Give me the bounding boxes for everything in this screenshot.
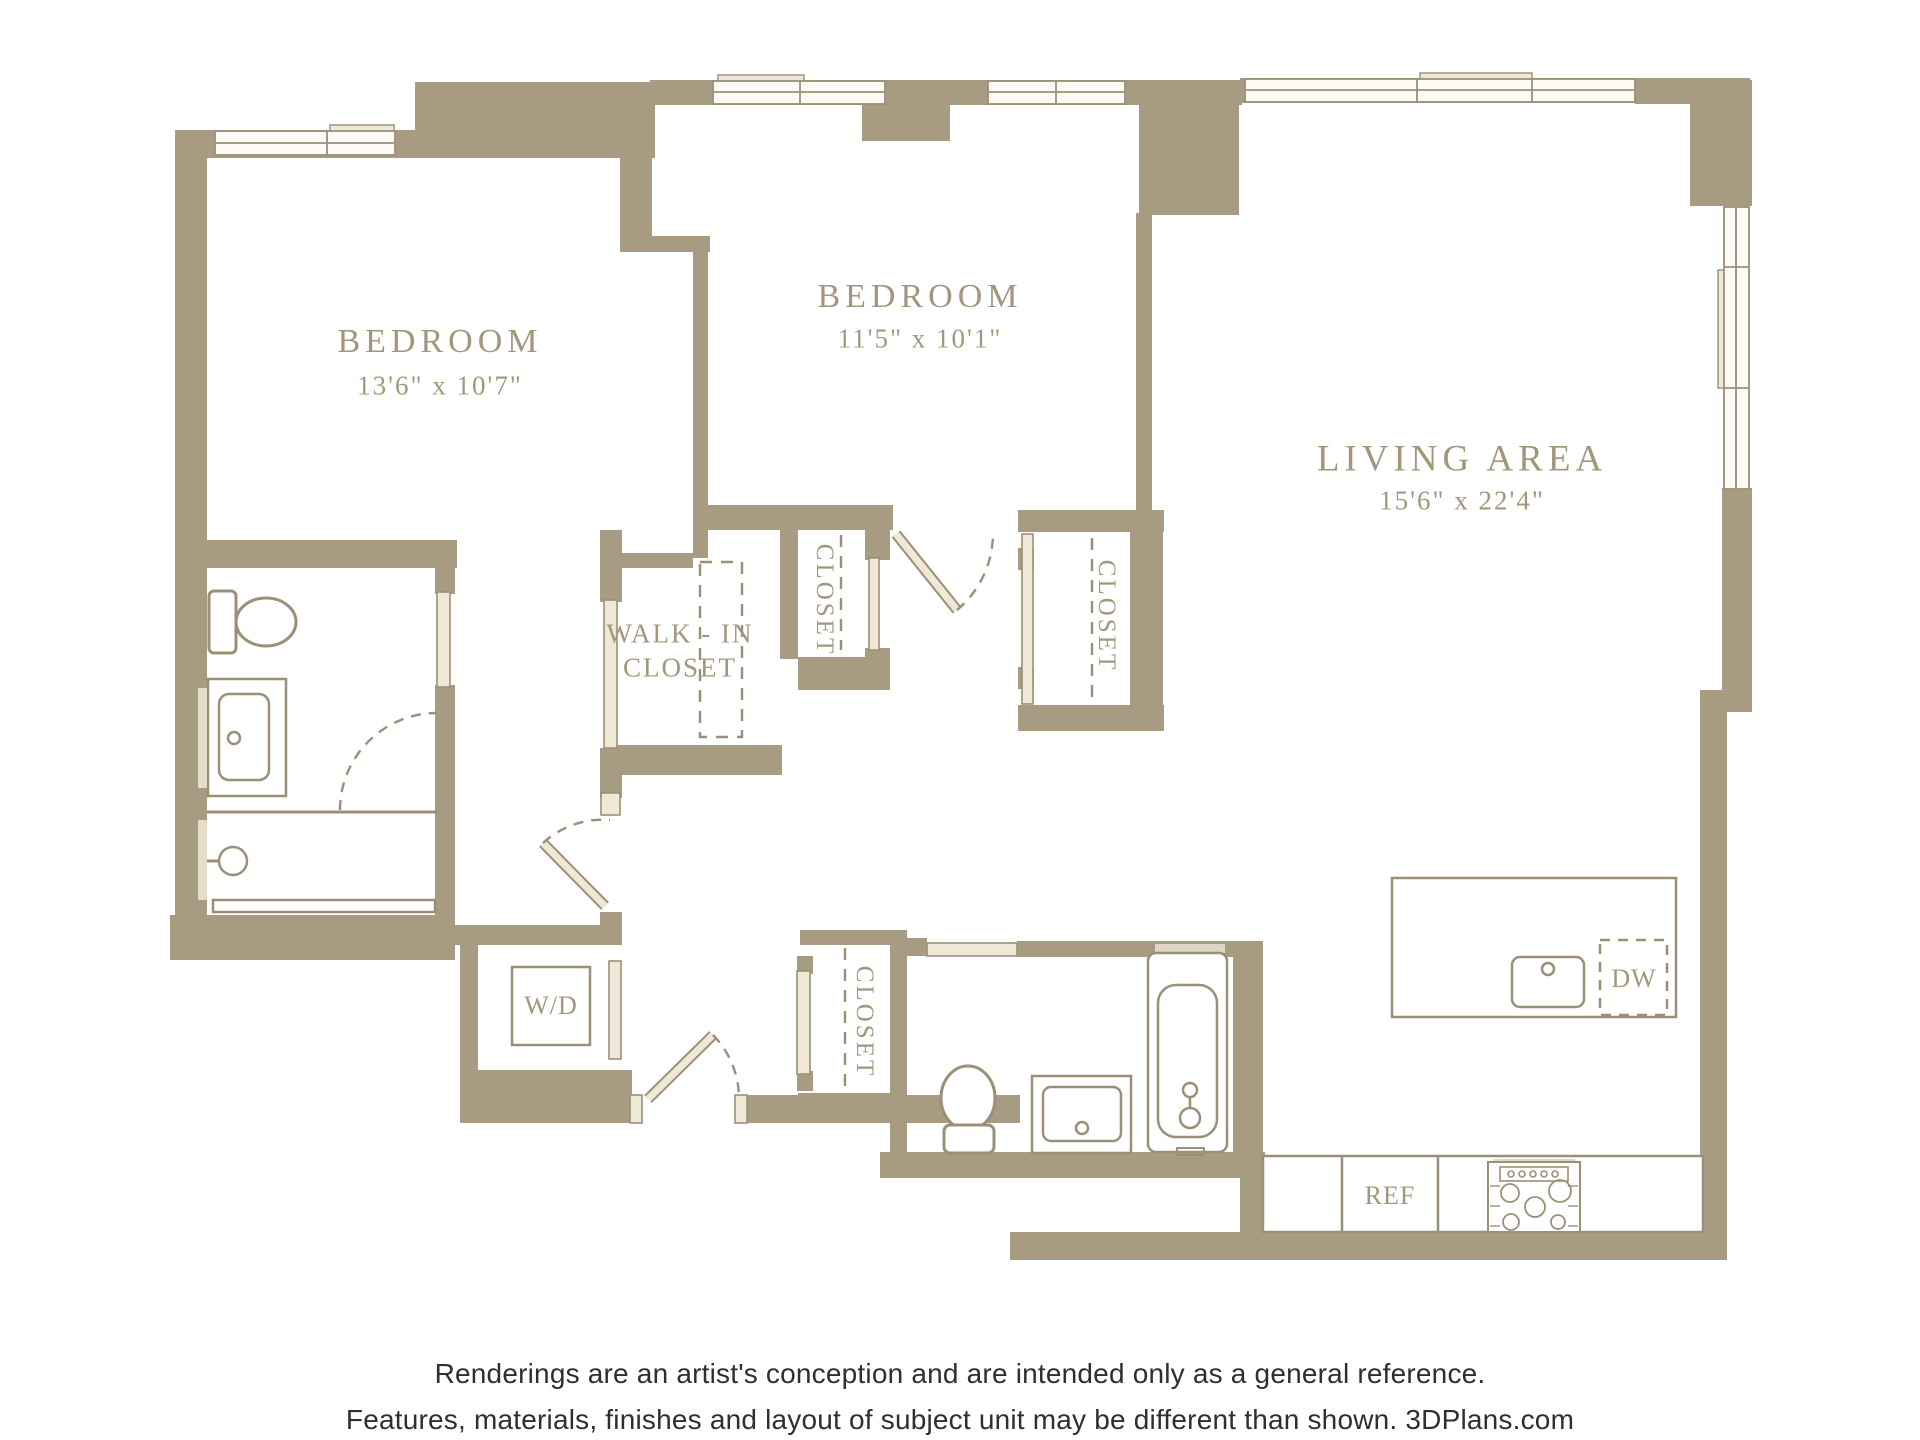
kitchen-counter (1263, 1156, 1703, 1232)
wd-door (609, 961, 621, 1059)
bath1-door (437, 592, 450, 687)
disclaimer-line1: Renderings are an artist's conception an… (435, 1358, 1486, 1390)
walk-in-closet-label-line2: CLOSET (623, 653, 737, 684)
disclaimer-line2: Features, materials, finishes and layout… (346, 1404, 1574, 1436)
floor-plan-svg (0, 0, 1920, 1440)
entry-jamb-right (735, 1095, 747, 1123)
walkin-shelf (700, 562, 742, 737)
walk-in-closet-label-line1: WALK - IN (607, 619, 754, 650)
stove (1488, 1159, 1580, 1232)
washer-dryer-label: W/D (524, 991, 578, 1021)
closet3-door (797, 971, 810, 1074)
living-area-dimensions: 15'6" x 22'4" (1379, 486, 1545, 517)
floor-plan-page: BEDROOM 13'6" x 10'7" BEDROOM 11'5" x 10… (0, 0, 1920, 1440)
bedroom2-door-arc (957, 533, 993, 610)
kitchen-fixtures (1263, 878, 1703, 1232)
bath1-door-arc (340, 713, 437, 810)
closet2-label: CLOSET (1092, 560, 1120, 672)
bathtub (1148, 944, 1227, 1155)
toilet1 (209, 591, 296, 653)
closet3-label: CLOSET (850, 966, 878, 1078)
tub1-edge (213, 900, 435, 912)
entry-jamb-left (630, 1095, 642, 1123)
closet1-door (869, 558, 879, 650)
bedroom1-label: BEDROOM (337, 323, 542, 361)
vanity-sink2 (1032, 1076, 1131, 1153)
vanity-sink1 (208, 679, 286, 796)
bedroom2-label: BEDROOM (817, 278, 1022, 316)
bathroom2-fixtures (941, 944, 1227, 1155)
toilet2 (941, 1066, 995, 1153)
dishwasher-label: DW (1611, 964, 1656, 994)
hall-door-arc (543, 820, 610, 843)
kitchen-island (1392, 878, 1676, 1017)
entry-door-arc (713, 1035, 739, 1097)
hall-door-jamb (601, 793, 620, 815)
refrigerator-label: REF (1365, 1181, 1416, 1211)
bathroom1-fixtures (198, 591, 437, 912)
bath2-sliding-door (927, 943, 1017, 956)
living-area-label: LIVING AREA (1317, 438, 1607, 481)
closet1-label: CLOSET (810, 544, 838, 656)
closet2-door (1022, 534, 1033, 704)
bedroom1-dimensions: 13'6" x 10'7" (357, 371, 523, 402)
island-faucet (1542, 963, 1554, 975)
bedroom2-dimensions: 11'5" x 10'1" (838, 324, 1003, 355)
